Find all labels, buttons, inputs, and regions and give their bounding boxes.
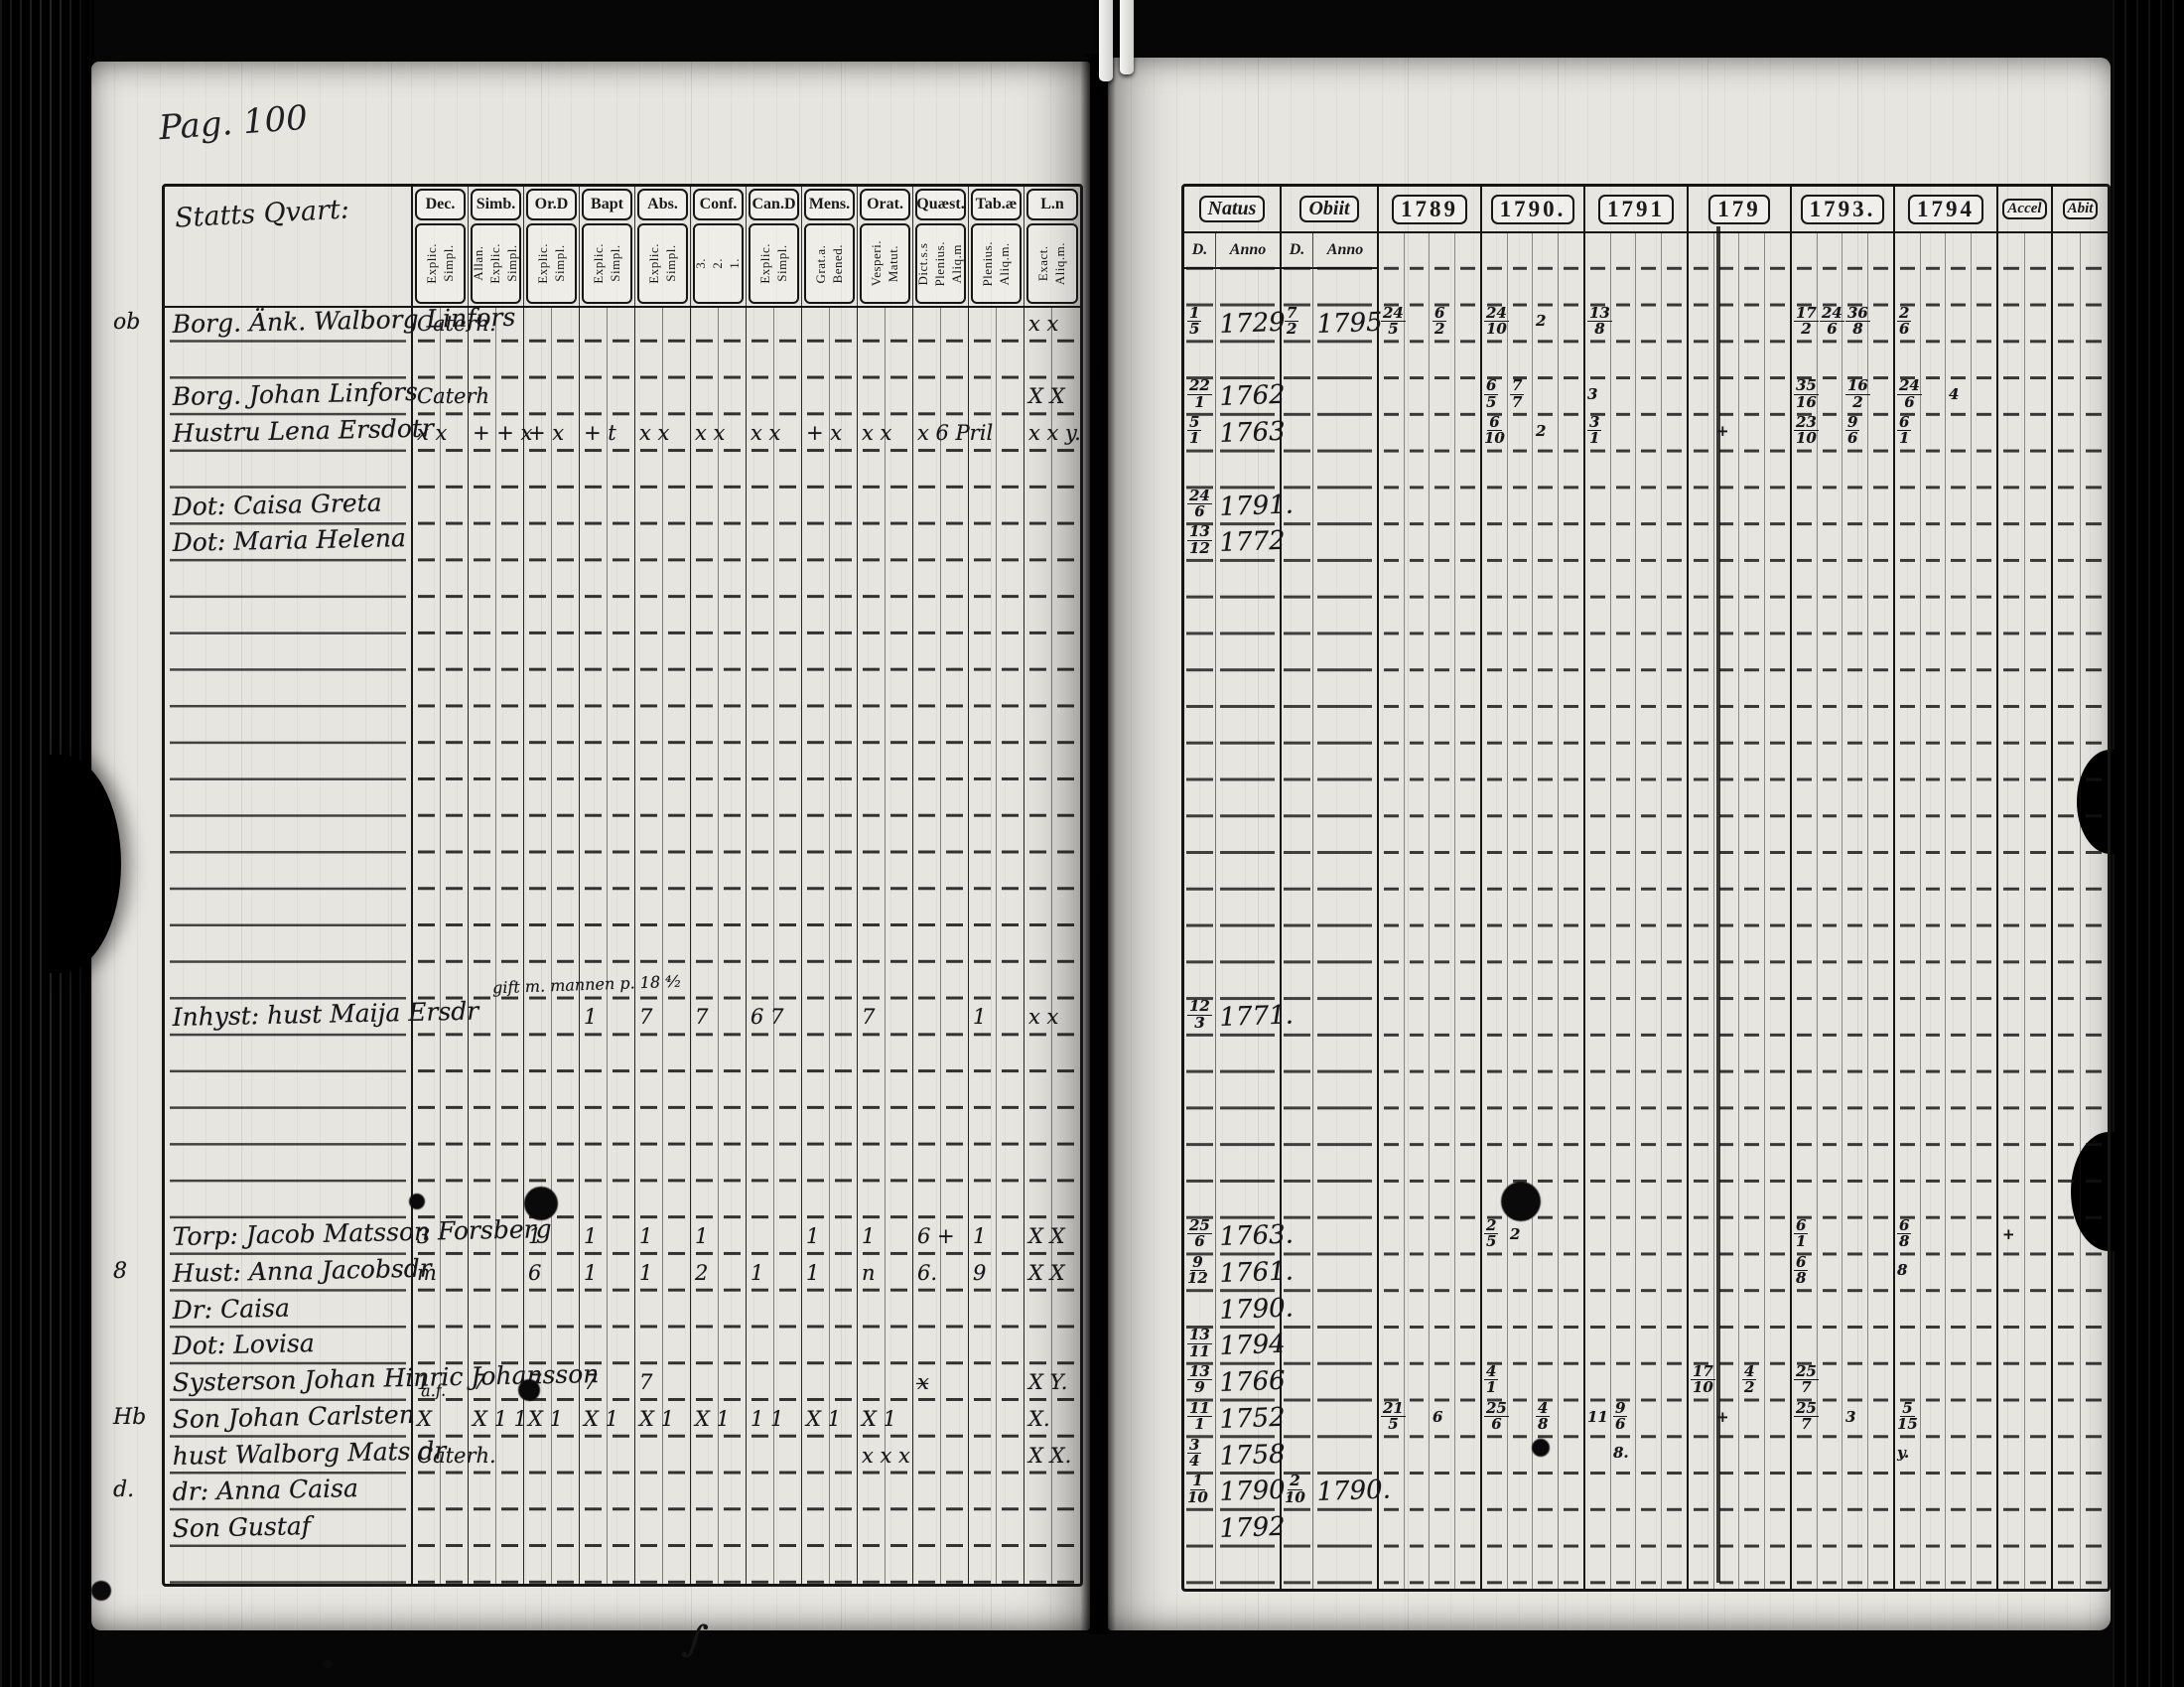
year-subcolumn [1792, 233, 1818, 1589]
year-subcolumn [1585, 233, 1611, 1589]
year-header: 179 [1689, 187, 1792, 233]
grid-subcolumn [580, 306, 608, 1584]
years-table: Natus Obiit 17891790.17911791793.1794Acc… [1181, 184, 2111, 1592]
year-subcolumn [1998, 233, 2025, 1589]
status-column-sublabel: Exact. Aliq.m. [1026, 223, 1078, 304]
page-fold-line [1716, 226, 1720, 1583]
year-subcolumn [1533, 233, 1559, 1589]
status-column: Quæst.Dict.s.s Plenius. Aliq.m [913, 187, 969, 306]
grid-subcolumn [913, 306, 941, 1584]
abit-header: Abit [2053, 187, 2108, 233]
grid-subcolumn [441, 306, 469, 1584]
accessit-column [1998, 233, 2053, 1589]
abit-header-label: Abit [2063, 199, 2099, 219]
status-column-sublabel: Vesperi. Matut. [860, 223, 910, 304]
obiit-day-column [1282, 233, 1313, 1589]
ink-blot [409, 1194, 425, 1209]
status-column-label: Mens. [804, 189, 855, 220]
rotated-sublabel-text: Explic. Simpl. [646, 243, 680, 284]
grid-subcolumn [774, 306, 802, 1584]
obiit-header: Obiit [1282, 187, 1379, 233]
year-column [1689, 233, 1792, 1589]
ink-blot [524, 1187, 558, 1220]
year-subcolumn [1946, 233, 1972, 1589]
status-grid [413, 306, 1080, 1584]
grid-subcolumn [608, 306, 635, 1584]
status-column-label: Quæst. [915, 189, 966, 220]
status-column: Orat.Vesperi. Matut. [858, 187, 913, 306]
status-column-sublabel: Dict.s.s Plenius. Aliq.m [915, 223, 966, 304]
rotated-sublabel-text: Explic. Simpl. [591, 243, 624, 284]
year-subcolumn [1430, 233, 1455, 1589]
status-column-sublabel: Allan. Explic. Simpl. [471, 223, 521, 304]
year-subcolumn [1482, 233, 1508, 1589]
grid-subcolumn [719, 306, 747, 1584]
year-subcolumn [1636, 233, 1662, 1589]
status-table: Statts Qvart: Dec.Explic. Simpl.Simb.All… [162, 184, 1083, 1587]
status-column-sublabel: Explic. Simpl. [582, 223, 632, 304]
accessit-header-label: Accel [2002, 199, 2046, 219]
status-column-label: Can.D [749, 189, 799, 220]
status-column: Simb.Allan. Explic. Simpl. [469, 187, 524, 306]
year-subcolumn [1559, 233, 1583, 1589]
book-spine [1080, 54, 1116, 1634]
year-subcolumn [1739, 233, 1765, 1589]
year-column [1585, 233, 1689, 1589]
year-label: 1793. [1801, 195, 1885, 224]
year-subcolumn [2081, 233, 2109, 1589]
status-column: Mens.Grat.a. Bened. [802, 187, 858, 306]
rotated-sublabel-text: Explic. Simpl. [757, 243, 791, 284]
status-column-sublabel: Plenius. Aliq.m. [971, 223, 1022, 304]
grid-subcolumn [886, 306, 913, 1584]
year-header: 1789 [1379, 187, 1482, 233]
accessit-header: Accel [1998, 187, 2053, 233]
year-subcolumn [1868, 233, 1893, 1589]
ink-blot [1501, 1182, 1541, 1221]
year-column [1895, 233, 1998, 1589]
status-column-sublabel: Explic. Simpl. [526, 223, 577, 304]
natus-header: Natus [1184, 187, 1282, 233]
status-column: Dec.Explic. Simpl. [413, 187, 469, 306]
status-column: BaptExplic. Simpl. [580, 187, 635, 306]
year-subcolumn [1818, 233, 1843, 1589]
ink-blot [518, 1379, 540, 1401]
grid-subcolumn [469, 306, 496, 1584]
status-column-label: Or.D [526, 189, 577, 220]
status-column-headers: Dec.Explic. Simpl.Simb.Allan. Explic. Si… [413, 187, 1080, 306]
status-column-label: Dec. [415, 189, 466, 220]
grid-subcolumn [941, 306, 969, 1584]
status-column-label: Conf. [693, 189, 744, 220]
ink-blot [91, 1581, 111, 1601]
scanned-ledger-photo: Pag. 100 Statts Qvart: Dec.Explic. Simpl… [0, 0, 2184, 1687]
rotated-sublabel-text: Plenius. Aliq.m. [980, 241, 1014, 287]
year-subcolumn [1921, 233, 1947, 1589]
obiit-label: Obiit [1299, 196, 1358, 222]
status-column-sublabel: Explic. Simpl. [415, 223, 466, 304]
status-table-header: Statts Qvart: Dec.Explic. Simpl.Simb.All… [165, 187, 1080, 308]
natus-anno-column [1216, 233, 1282, 1589]
year-header: 1791 [1585, 187, 1689, 233]
page-holder-bar [1099, 0, 1113, 81]
rotated-sublabel-text: Dict.s.s Plenius. Aliq.m [915, 241, 966, 287]
grid-subcolumn [747, 306, 774, 1584]
year-subcolumn [1405, 233, 1431, 1589]
ink-blot [1532, 1439, 1550, 1457]
name-column-header: Statts Qvart: [165, 187, 413, 306]
status-column: Conf.3. 2. 1. [691, 187, 747, 306]
status-column-label: L.n [1026, 189, 1078, 220]
grid-subcolumn [997, 306, 1024, 1584]
year-column [1482, 233, 1585, 1589]
year-header: 1794 [1895, 187, 1998, 233]
year-subcolumn [1455, 233, 1480, 1589]
grid-subcolumn [1024, 306, 1052, 1584]
rotated-sublabel-text: Allan. Explic. Simpl. [471, 243, 521, 284]
year-subcolumn [1972, 233, 1996, 1589]
status-column-label: Simb. [471, 189, 521, 220]
grid-subcolumn [635, 306, 663, 1584]
natus-day-column [1184, 233, 1216, 1589]
status-column-label: Abs. [637, 189, 688, 220]
status-column: Or.DExplic. Simpl. [524, 187, 580, 306]
grid-subcolumn [858, 306, 886, 1584]
status-column: Abs.Explic. Simpl. [635, 187, 691, 306]
status-column: Tab.æPlenius. Aliq.m. [969, 187, 1024, 306]
year-label: 1794 [1908, 195, 1983, 224]
year-subcolumn [1379, 233, 1405, 1589]
status-column-sublabel: 3. 2. 1. [693, 223, 744, 304]
year-subcolumn [2053, 233, 2081, 1589]
status-column-label: Orat. [860, 189, 910, 220]
status-column-label: Tab.æ [971, 189, 1022, 220]
status-column-label: Bapt [582, 189, 632, 220]
year-label: 1790. [1491, 195, 1575, 224]
year-label: 1789 [1392, 195, 1467, 224]
grid-subcolumn [830, 306, 858, 1584]
status-column: L.nExact. Aliq.m. [1024, 187, 1080, 306]
year-subcolumn [1689, 233, 1714, 1589]
year-subcolumn [1611, 233, 1637, 1589]
grid-subcolumn [1052, 306, 1080, 1584]
grid-subcolumn [663, 306, 691, 1584]
year-label: 179 [1708, 195, 1770, 224]
rotated-sublabel-text: Exact. Aliq.m. [1035, 242, 1069, 285]
grid-subcolumn [969, 306, 997, 1584]
rotated-sublabel-text: 3. 2. 1. [693, 258, 744, 269]
year-subcolumn [1662, 233, 1687, 1589]
ink-blot [323, 1659, 333, 1669]
year-header: 1793. [1792, 187, 1895, 233]
abit-column [2053, 233, 2108, 1589]
page-holder-bar [1120, 0, 1134, 74]
table-title: Statts Qvart: [174, 194, 349, 233]
grid-subcolumn [552, 306, 580, 1584]
grid-subcolumn [802, 306, 830, 1584]
years-table-header: Natus Obiit 17891790.17911791793.1794Acc… [1184, 187, 2108, 233]
status-table-body [165, 306, 1080, 1584]
natus-label: Natus [1199, 196, 1266, 222]
grid-subcolumn [413, 306, 441, 1584]
rotated-sublabel-text: Explic. Simpl. [424, 243, 458, 284]
grid-subcolumn [691, 306, 719, 1584]
rotated-sublabel-text: Grat.a. Bened. [813, 244, 847, 283]
status-column-sublabel: Explic. Simpl. [749, 223, 799, 304]
status-column: Can.DExplic. Simpl. [747, 187, 802, 306]
rotated-sublabel-text: Explic. Simpl. [535, 243, 569, 284]
year-subcolumn [1843, 233, 1868, 1589]
year-header: 1790. [1482, 187, 1585, 233]
year-subcolumn [1508, 233, 1534, 1589]
name-column [165, 306, 413, 1584]
book-edge-right [2113, 0, 2184, 1687]
obiit-anno-column [1313, 233, 1379, 1589]
year-column [1379, 233, 1482, 1589]
rotated-sublabel-text: Vesperi. Matut. [869, 240, 902, 286]
year-label: 1791 [1598, 195, 1674, 224]
year-column [1792, 233, 1895, 1589]
year-subcolumn [1765, 233, 1790, 1589]
year-subcolumn [1895, 233, 1921, 1589]
year-subcolumn [2025, 233, 2051, 1589]
years-table-body [1184, 233, 2108, 1589]
status-column-sublabel: Grat.a. Bened. [804, 223, 855, 304]
status-column-sublabel: Explic. Simpl. [637, 223, 688, 304]
